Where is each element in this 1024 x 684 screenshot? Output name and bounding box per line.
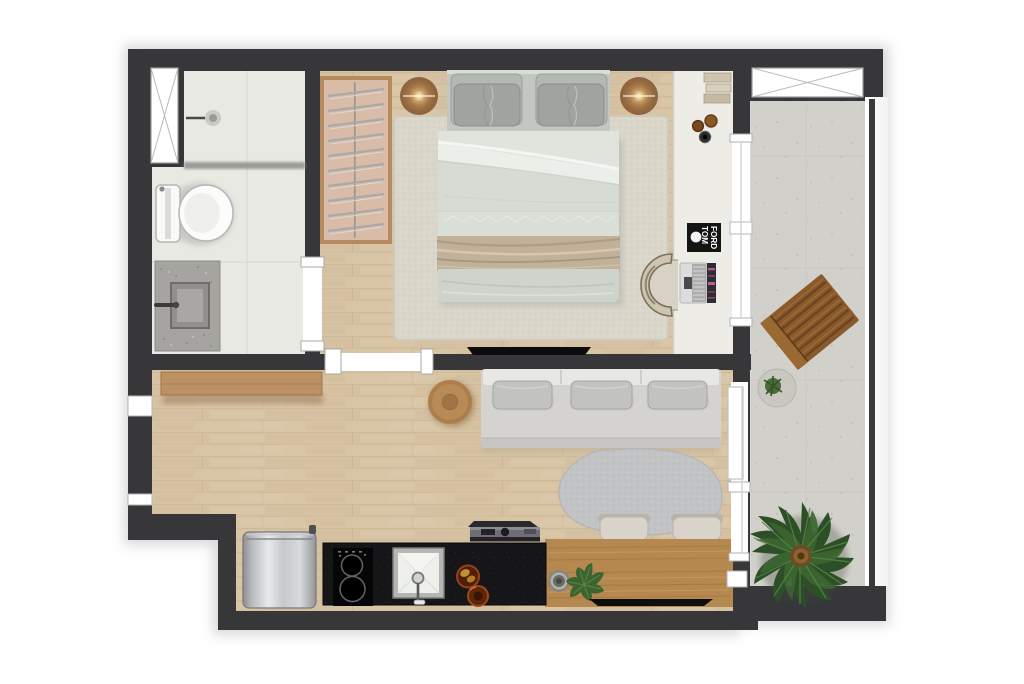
svg-text:TOM: TOM	[700, 226, 709, 244]
svg-text:FORD: FORD	[709, 226, 718, 249]
